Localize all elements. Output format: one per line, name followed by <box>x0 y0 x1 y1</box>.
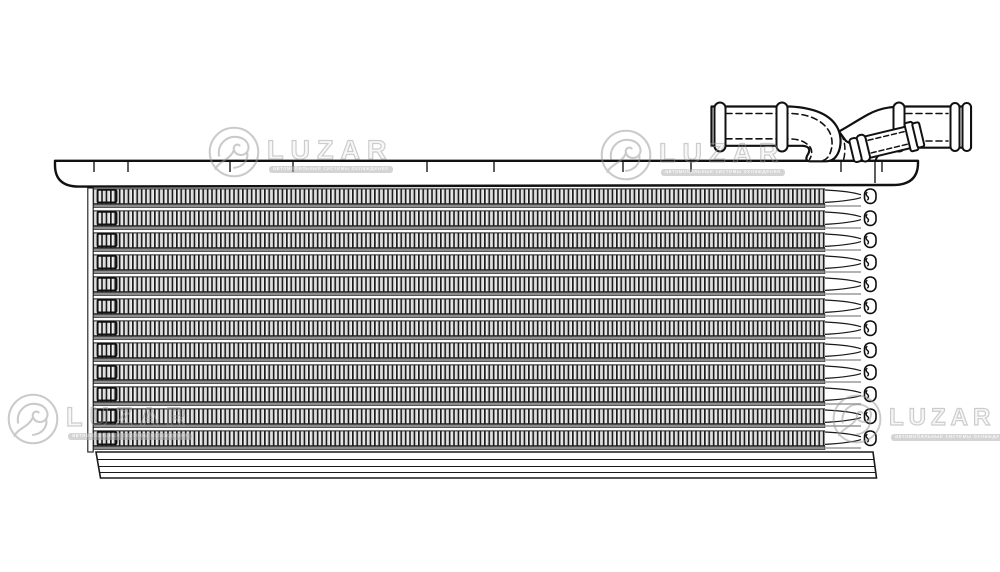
left-elbow-pipe <box>712 103 841 162</box>
core-fin-rows <box>88 189 876 451</box>
intercooler-technical-drawing-page: LUZAR автомобильные системы охлаждения L… <box>0 0 1000 572</box>
intercooler-drawing <box>0 0 1000 572</box>
bottom-plate <box>96 452 877 478</box>
core-left-side-plate <box>88 188 93 452</box>
hose-fittings <box>712 103 972 166</box>
top-tank-plate <box>55 161 918 187</box>
